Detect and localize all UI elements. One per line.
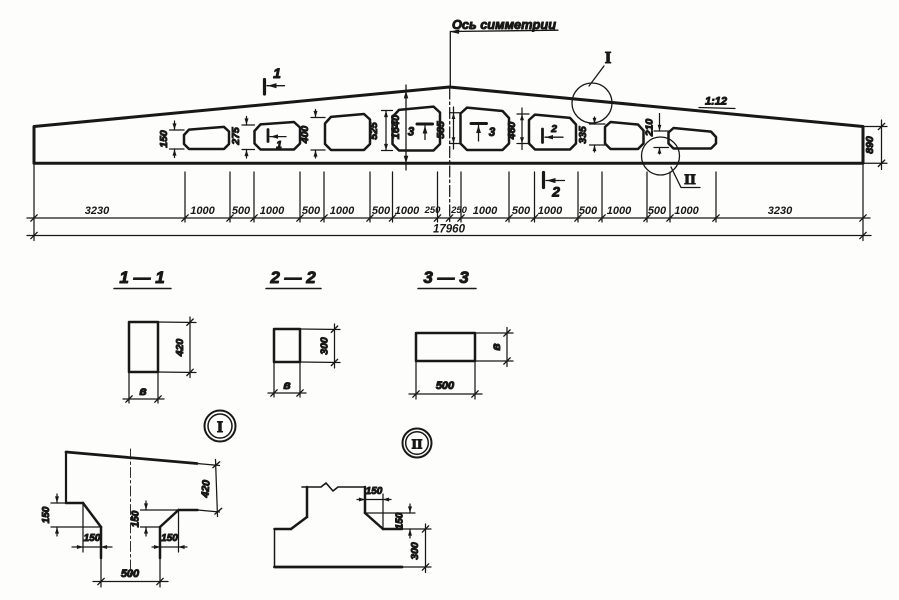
svg-text:Ось симметрии: Ось симметрии	[452, 17, 556, 32]
svg-text:585: 585	[435, 121, 447, 139]
svg-text:150: 150	[161, 533, 178, 544]
svg-text:1: 1	[276, 140, 282, 151]
svg-text:1640: 1640	[390, 114, 402, 139]
svg-text:890: 890	[864, 136, 876, 154]
svg-text:2: 2	[550, 123, 557, 135]
svg-text:500: 500	[232, 205, 251, 217]
svg-text:150: 150	[158, 130, 170, 148]
svg-text:в: в	[489, 343, 503, 350]
svg-text:II: II	[412, 438, 423, 453]
svg-text:500: 500	[512, 205, 531, 217]
svg-text:300: 300	[409, 542, 421, 560]
svg-text:150: 150	[395, 512, 406, 529]
svg-text:210: 210	[644, 119, 656, 138]
svg-text:500: 500	[436, 380, 455, 392]
svg-text:150: 150	[366, 486, 383, 497]
svg-text:250: 250	[450, 205, 468, 216]
svg-text:17960: 17960	[433, 224, 466, 236]
svg-text:420: 420	[199, 479, 212, 498]
svg-text:1000: 1000	[395, 205, 420, 217]
svg-text:1000: 1000	[190, 205, 215, 217]
svg-text:1000: 1000	[260, 205, 285, 217]
svg-text:500: 500	[121, 568, 140, 580]
svg-text:I: I	[605, 48, 612, 67]
svg-text:в: в	[139, 384, 146, 398]
svg-text:3: 3	[489, 127, 496, 139]
svg-text:400: 400	[299, 126, 311, 145]
svg-text:525: 525	[368, 122, 380, 140]
svg-text:1: 1	[273, 65, 281, 81]
svg-text:460: 460	[506, 122, 518, 141]
svg-text:в: в	[283, 378, 290, 392]
svg-text:500: 500	[579, 205, 598, 217]
svg-text:150: 150	[41, 506, 52, 523]
svg-text:3230: 3230	[85, 205, 110, 217]
svg-text:2 — 2: 2 — 2	[269, 268, 316, 287]
svg-text:150: 150	[84, 533, 101, 544]
svg-text:3: 3	[408, 127, 415, 139]
svg-text:500: 500	[302, 205, 321, 217]
svg-text:3 — 3: 3 — 3	[423, 268, 469, 287]
svg-text:250: 250	[424, 205, 442, 216]
svg-text:420: 420	[174, 339, 186, 358]
svg-text:3230: 3230	[768, 205, 793, 217]
svg-text:300: 300	[319, 337, 331, 355]
svg-text:500: 500	[372, 205, 391, 217]
svg-text:1000: 1000	[473, 205, 498, 217]
svg-text:2: 2	[551, 184, 560, 200]
svg-text:275: 275	[230, 127, 242, 146]
svg-text:150: 150	[131, 510, 142, 527]
svg-text:1000: 1000	[330, 205, 355, 217]
svg-text:I: I	[217, 419, 223, 436]
svg-text:335: 335	[577, 126, 589, 144]
svg-text:1000: 1000	[607, 205, 632, 217]
svg-text:II: II	[684, 172, 696, 188]
svg-text:1 — 1: 1 — 1	[119, 268, 164, 287]
svg-text:500: 500	[648, 205, 667, 217]
svg-text:1000: 1000	[674, 205, 699, 217]
svg-text:1000: 1000	[538, 205, 563, 217]
svg-text:1:12: 1:12	[705, 96, 727, 108]
